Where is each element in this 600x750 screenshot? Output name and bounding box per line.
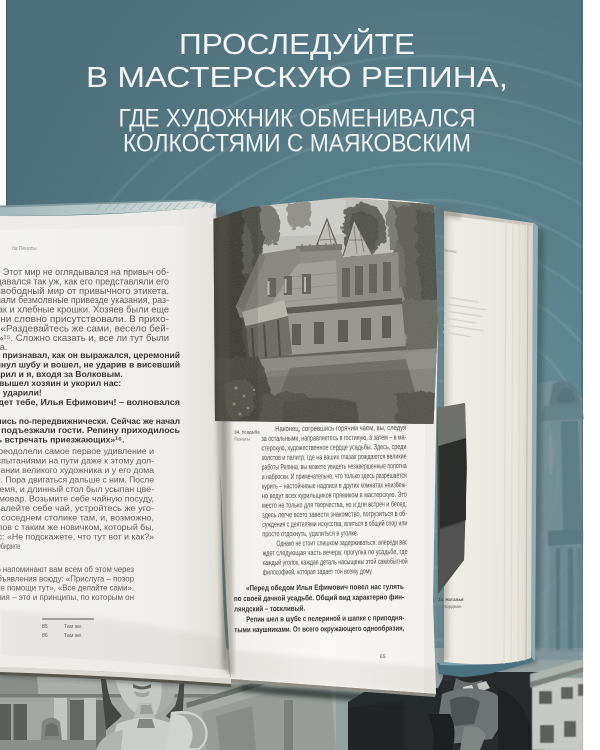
svg-text:по своей дачной усадьбе. Общий: по своей дачной усадьбе. Общий вид харак… <box>234 592 404 603</box>
svg-text:о выходить встречать приезжающ: о выходить встречать приезжающих»¹⁶. <box>0 435 124 445</box>
svg-text:КОЛКОСТЯМИ С МАЯКОВСКИМ: КОЛКОСТЯМИ С МАЯКОВСКИМ <box>123 130 471 158</box>
svg-text:86: 86 <box>42 633 48 639</box>
svg-text:еру в компании великого художн: еру в компании великого художника и у ег… <box>0 465 154 475</box>
svg-text:Нордман: Нордман <box>443 604 462 609</box>
svg-text:ПРОСЛЕДУЙТЕ: ПРОСЛЕДУЙТЕ <box>179 27 415 61</box>
svg-text:34. Усадьба: 34. Усадьба <box>234 429 260 434</box>
svg-text:окройте слов с таким же новичк: окройте слов с таким же новичком, которы… <box>0 522 154 532</box>
svg-text:ГДЕ ХУДОЖНИК ОБМЕНИВАЛСЯ: ГДЕ ХУДОЖНИК ОБМЕНИВАЛСЯ <box>119 105 476 133</box>
svg-text:философией, которая задает тон: философией, которая задает тон всему дом… <box>263 566 373 576</box>
svg-text:ервыми испытаниями на пути даж: ервыми испытаниями на пути даже к этому … <box>0 456 154 466</box>
svg-text:ы невидимо напоминают вам всем: ы невидимо напоминают вам всем об этом ч… <box>0 565 134 574</box>
svg-text:– Да ну, будет тебе, Илья Ефим: – Да ну, будет тебе, Илья Ефимович! – во… <box>0 397 180 407</box>
svg-text:исто указания – это и принципы: исто указания – это и принципы, по котор… <box>0 593 134 602</box>
svg-text:омесь вы посуду убираете: омесь вы посуду убираете <box>0 541 20 551</box>
svg-text:тыми наушниками. От всего окру: тыми наушниками. От всего окружающего од… <box>234 624 404 635</box>
svg-text:просит вас: «Не подскажете, чт: просит вас: «Не подскажете, что тут вот … <box>0 532 154 542</box>
svg-text:ляндский – тоскливый.: ляндский – тоскливый. <box>234 604 305 614</box>
svg-text:ных гостей. Пора двигаться дал: ных гостей. Пора двигаться дальше с ним.… <box>0 475 154 485</box>
svg-text:34. Наталья: 34. Наталья <box>438 597 464 602</box>
svg-text:сть, уже преодолели самое перв: сть, уже преодолели самое первое удивлен… <box>0 446 154 456</box>
svg-text:Пенаты: Пенаты <box>234 437 250 442</box>
svg-text:опомощь»¹⁵. Сложно сказать и,: опомощь»¹⁵. Сложно сказать и, все ли тут… <box>0 333 169 343</box>
svg-text:Там же.: Там же. <box>64 633 83 639</box>
svg-text:каждый уголок, каждая деталь н: каждый уголок, каждая деталь насыщены эт… <box>263 557 408 568</box>
svg-text:85: 85 <box>42 624 48 630</box>
svg-text:с собой, налейте себе чай, уст: с собой, налейте себе чай, устройтесь же… <box>0 503 154 513</box>
svg-text:зимнее время, и длинный стол б: зимнее время, и длинный стол был усыпан … <box>0 484 154 494</box>
svg-text:и стенам объявления всюду: «Пр: и стенам объявления всюду: «Прислуга – п… <box>0 574 135 583</box>
svg-text:суждения с деятелями искусства: суждения с деятелями искусства, влиться … <box>262 518 407 529</box>
svg-text:65: 65 <box>380 654 386 660</box>
svg-text:я. «Не ждите помощи тут», «Все: я. «Не ждите помощи тут», «Все делайте с… <box>0 584 134 593</box>
svg-text:Репин шел в шубе с пелериной и: Репин шел в шубе с пелериной и шапке с п… <box>246 613 404 624</box>
svg-text:ба Пенаты: ба Пенаты <box>12 246 37 252</box>
svg-text:всего – самовар. Возьмите себе: всего – самовар. Возьмите себе чайную по… <box>0 494 154 504</box>
svg-text:«Перед обедом Илья Ефимович по: «Перед обедом Илья Ефимович повел нас гу… <box>246 582 404 593</box>
svg-text:Там же.: Там же. <box>64 624 83 630</box>
svg-text:просто отдохнуть, удалиться в: просто отдохнуть, удалиться в уголке. <box>262 528 358 538</box>
svg-text:В МАСТЕРСКУЮ РЕПИНА,: В МАСТЕРСКУЮ РЕПИНА, <box>86 62 508 94</box>
svg-text:енным на соседнем столике там,: енным на соседнем столике там, и, возмож… <box>0 513 154 523</box>
